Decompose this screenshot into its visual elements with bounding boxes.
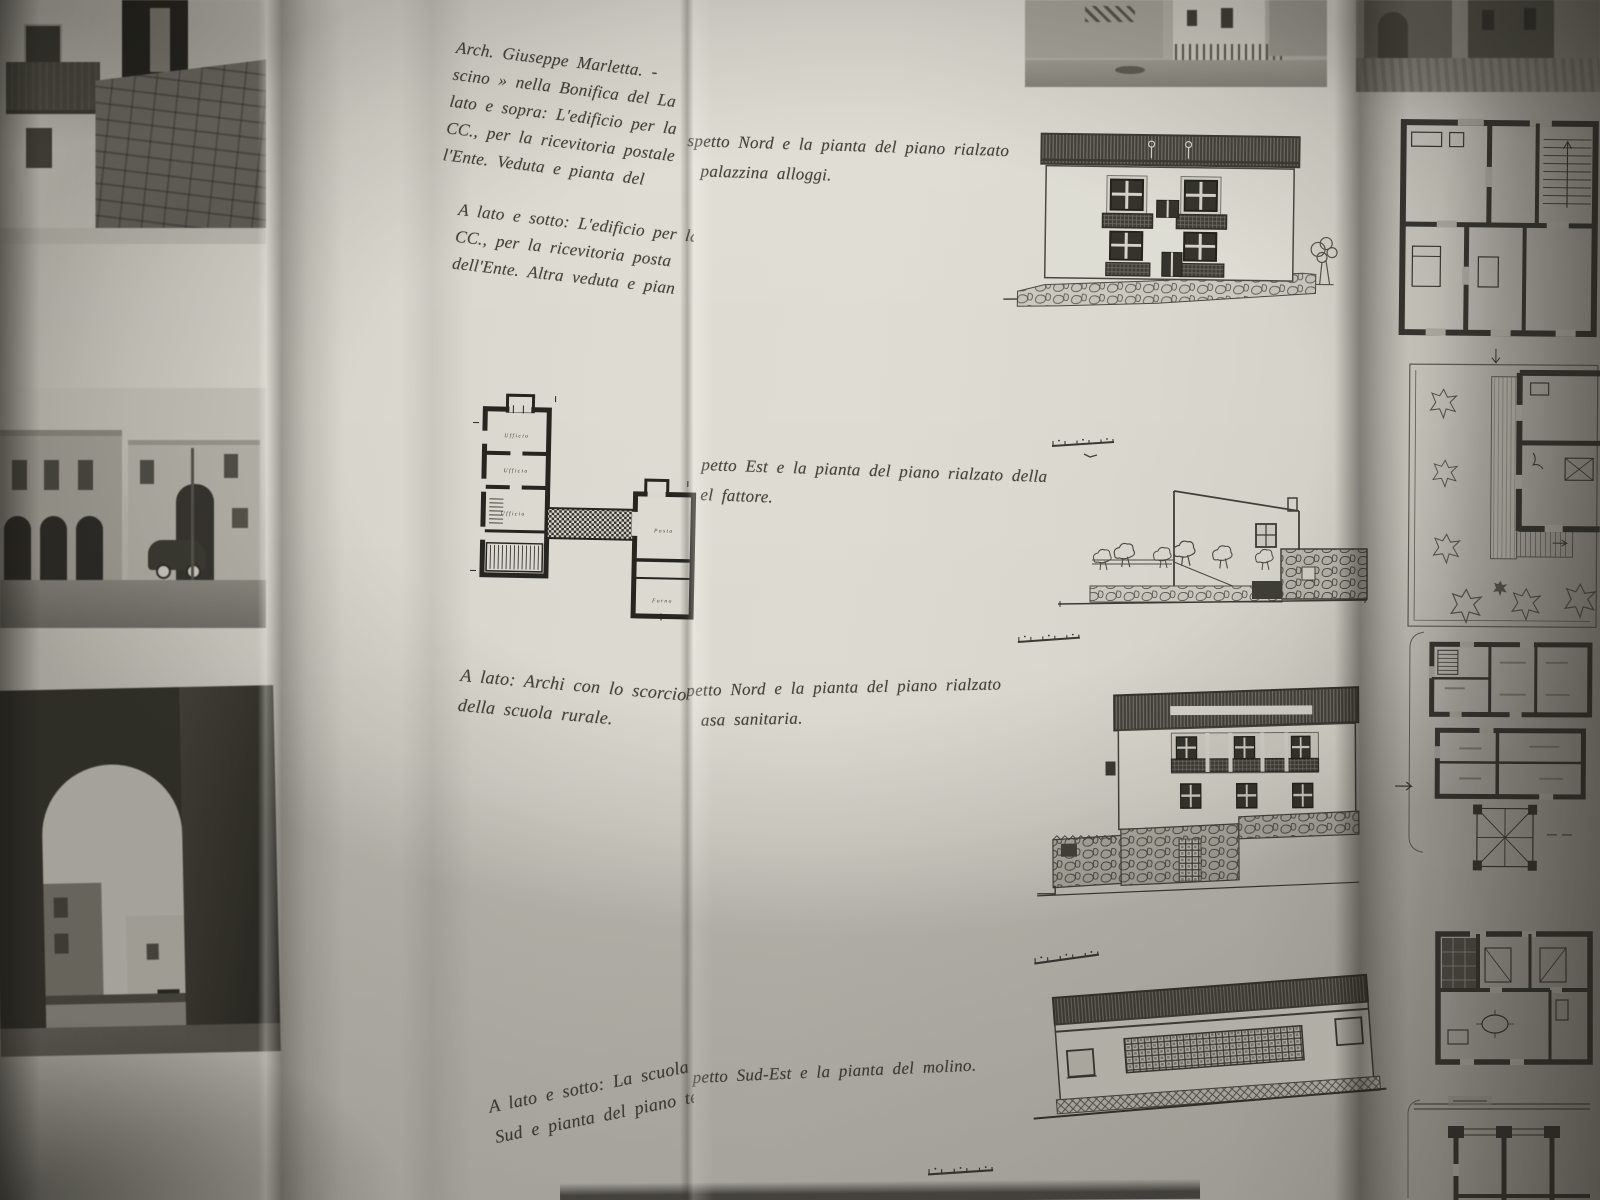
left-page-text-area: Arch. Giuseppe Marletta. - scino » nella…: [298, 0, 694, 1200]
caption-line: petto Sud-Est e la pianta del molino.: [692, 1052, 977, 1091]
right-page-text-area: spetto Nord e la pianta del piano rialza…: [686, 0, 1346, 1200]
caption-frag-est-fattore: petto Est e la pianta del piano rialzato…: [700, 450, 1048, 522]
plan-right-bottom-partial: [1408, 1096, 1590, 1200]
caption-lato-sotto-scuola: A lato e sotto: La scuola Sud e pianta d…: [486, 1049, 694, 1152]
caption-lato-archi: A lato: Archi con lo scorcio della scuol…: [457, 660, 688, 740]
book-spread-photo: Ufficio Ufficio Ufficio Posta Forno: [0, 0, 1600, 1200]
caption-line: asa sanitaria.: [687, 699, 1003, 736]
caption-lato-sotto-edificio: A lato e sotto: L'edificio per la CC., p…: [451, 196, 694, 304]
plan-right-top: [1402, 118, 1596, 337]
plan-right-lower: [1438, 931, 1590, 1065]
caption-frag-sudest-molino: petto Sud-Est e la pianta del molino.: [692, 1052, 977, 1091]
plan-right-school: [1395, 632, 1590, 871]
caption-credit: Arch. Giuseppe Marletta. - scino » nella…: [442, 34, 687, 196]
plan-right-siteplan: [1408, 348, 1600, 627]
caption-frag-nord-palazzina: spetto Nord e la pianta del piano rialza…: [686, 126, 1010, 196]
caption-frag-nord-sanitaria: petto Nord e la pianta del piano rialzat…: [686, 669, 1002, 736]
book-bottom-edge-shadow: [560, 1179, 1200, 1200]
